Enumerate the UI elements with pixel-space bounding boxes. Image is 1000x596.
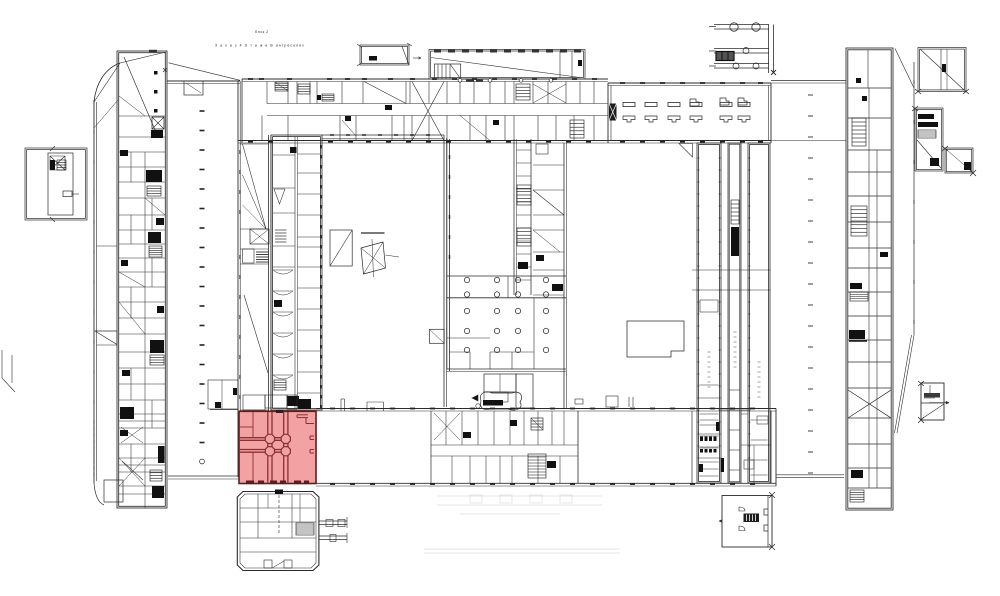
svg-text:З а к а з 4 Э т а ж и В антр: З а к а з 4 Э т а ж и В антресолях <box>215 44 305 48</box>
svg-text:Блок 2: Блок 2 <box>255 30 268 34</box>
